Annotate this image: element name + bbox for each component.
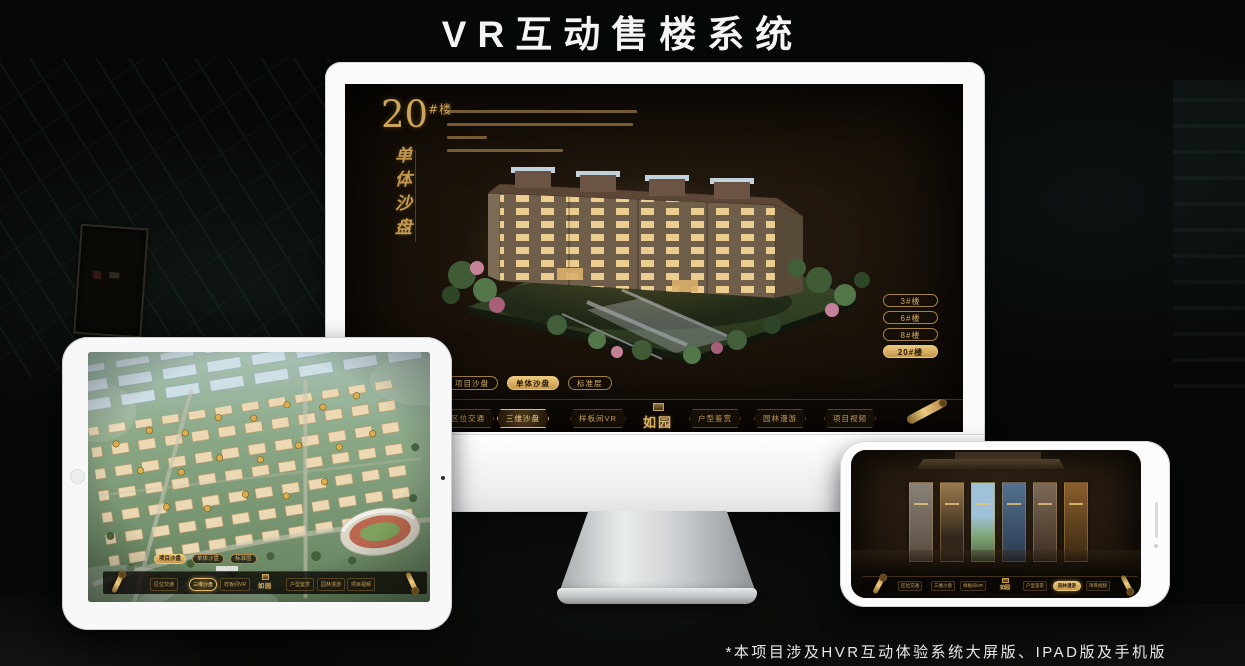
ipad-navbar: 区位交通 三维沙盘 样板间VR 如园 户型鉴赏 园林漫游 项目视频 bbox=[103, 571, 427, 594]
phone-device: 区位交通 三维沙盘 样板间VR 如园 户型鉴赏 园林漫游 项目视频 bbox=[840, 441, 1170, 607]
unit-number: 20 bbox=[381, 93, 428, 136]
phone-camera bbox=[1154, 544, 1158, 548]
phone-nav-garden-roam[interactable]: 园林漫游 bbox=[1053, 581, 1081, 591]
ipad-nav-garden-roam[interactable]: 园林漫游 bbox=[317, 578, 345, 591]
footnote: *本项目涉及HVR互动体验系统大屏版、IPAD版及手机版 bbox=[726, 641, 1167, 662]
ipad-tab-unit-sandbox[interactable]: 单体沙盘 bbox=[192, 554, 224, 564]
floor-button-20[interactable]: 20#楼 bbox=[883, 345, 938, 358]
mode-tab-group: 项目沙盘 单体沙盘 标准层 bbox=[446, 376, 612, 390]
ipad-nav-3d-sandbox[interactable]: 三维沙盘 bbox=[189, 578, 217, 591]
ipad-nav-project-video[interactable]: 项目视频 bbox=[347, 578, 375, 591]
scroll-ornament-icon bbox=[905, 398, 946, 426]
ipad-brand-logo: 如园 bbox=[258, 574, 272, 590]
ipad-screen: 项目沙盘 单体沙盘 标准层 区位交通 三维沙盘 样板间VR 如园 户型鉴赏 园林… bbox=[88, 352, 430, 602]
floor-button-3[interactable]: 3#楼 bbox=[883, 294, 938, 307]
floor-button-6[interactable]: 6#楼 bbox=[883, 311, 938, 324]
background-buildings-right bbox=[1173, 80, 1245, 410]
nav-garden-roam[interactable]: 园林漫游 bbox=[754, 409, 806, 428]
ipad-nav-location-traffic[interactable]: 区位交通 bbox=[150, 578, 178, 591]
page-title: VR互动售楼系统 bbox=[0, 4, 1245, 58]
phone-navbar: 区位交通 三维沙盘 样板间VR 如园 户型鉴赏 园林漫游 项目视频 bbox=[861, 576, 1139, 593]
phone-nav-project-video[interactable]: 项目视频 bbox=[1086, 581, 1110, 591]
brand-logo: 如园 bbox=[643, 403, 673, 431]
phone-nav-floorplan-gallery[interactable]: 户型鉴赏 bbox=[1023, 581, 1047, 591]
phone-screen: 区位交通 三维沙盘 样板间VR 如园 户型鉴赏 园林漫游 项目视频 bbox=[851, 450, 1141, 598]
floor-button-8[interactable]: 8#楼 bbox=[883, 328, 938, 341]
ipad-device: 项目沙盘 单体沙盘 标准层 区位交通 三维沙盘 样板间VR 如园 户型鉴赏 园林… bbox=[62, 337, 452, 630]
brand-seal-icon bbox=[1001, 578, 1008, 583]
ipad-nav-floorplan-gallery[interactable]: 户型鉴赏 bbox=[286, 578, 314, 591]
unit-title: 20#楼 bbox=[381, 96, 452, 133]
ipad-home-button[interactable] bbox=[441, 476, 445, 480]
ipad-tab-standard-floor[interactable]: 标准层 bbox=[230, 554, 257, 564]
phone-nav-location-traffic[interactable]: 区位交通 bbox=[898, 581, 922, 591]
ipad-camera bbox=[70, 469, 85, 484]
floor-button-group: 3#楼 6#楼 8#楼 20#楼 bbox=[883, 294, 941, 362]
monitor-stand-base bbox=[557, 588, 757, 604]
building-3d-render[interactable] bbox=[437, 140, 882, 395]
ipad-mode-tab-group: 项目沙盘 单体沙盘 标准层 bbox=[154, 554, 257, 564]
brand-seal-icon bbox=[652, 403, 663, 411]
monitor-stand-neck bbox=[560, 511, 755, 590]
scroll-ornament-icon bbox=[405, 571, 419, 593]
phone-nav-showroom-vr[interactable]: 样板间VR bbox=[960, 581, 986, 591]
nav-project-video[interactable]: 项目视频 bbox=[824, 409, 876, 428]
subtitle-divider bbox=[415, 150, 416, 242]
gate-roof-top bbox=[955, 452, 1041, 459]
gate-roof bbox=[917, 459, 1065, 469]
scroll-ornament-icon bbox=[872, 574, 886, 594]
nav-showroom-vr[interactable]: 样板间VR bbox=[570, 409, 626, 428]
tab-project-sandbox[interactable]: 项目沙盘 bbox=[446, 376, 498, 390]
courtyard-floor bbox=[851, 550, 1141, 576]
unit-subtitle-vertical: 单体沙盘 bbox=[389, 146, 414, 242]
ipad-tab-project-sandbox[interactable]: 项目沙盘 bbox=[154, 554, 186, 564]
ipad-nav-showroom-vr[interactable]: 样板间VR bbox=[220, 578, 250, 591]
scroll-ornament-icon bbox=[1120, 574, 1134, 594]
masterplan-aerial-render[interactable] bbox=[88, 352, 430, 602]
phone-brand-logo: 如园 bbox=[1000, 578, 1010, 591]
nav-3d-sandbox[interactable]: 三维沙盘 bbox=[497, 409, 549, 428]
background-map-lines bbox=[0, 58, 330, 378]
nav-floorplan-gallery[interactable]: 户型鉴赏 bbox=[689, 409, 741, 428]
phone-speaker-slot bbox=[1155, 502, 1158, 538]
tab-unit-sandbox[interactable]: 单体沙盘 bbox=[507, 376, 559, 390]
scroll-ornament-icon bbox=[111, 571, 125, 593]
tab-standard-floor[interactable]: 标准层 bbox=[568, 376, 612, 390]
phone-nav-3d-sandbox[interactable]: 三维沙盘 bbox=[931, 581, 955, 591]
poster-stage: VR互动售楼系统 20#楼 单体沙盘 bbox=[0, 0, 1245, 666]
brand-seal-icon bbox=[261, 574, 268, 580]
background-plaque bbox=[73, 224, 149, 338]
